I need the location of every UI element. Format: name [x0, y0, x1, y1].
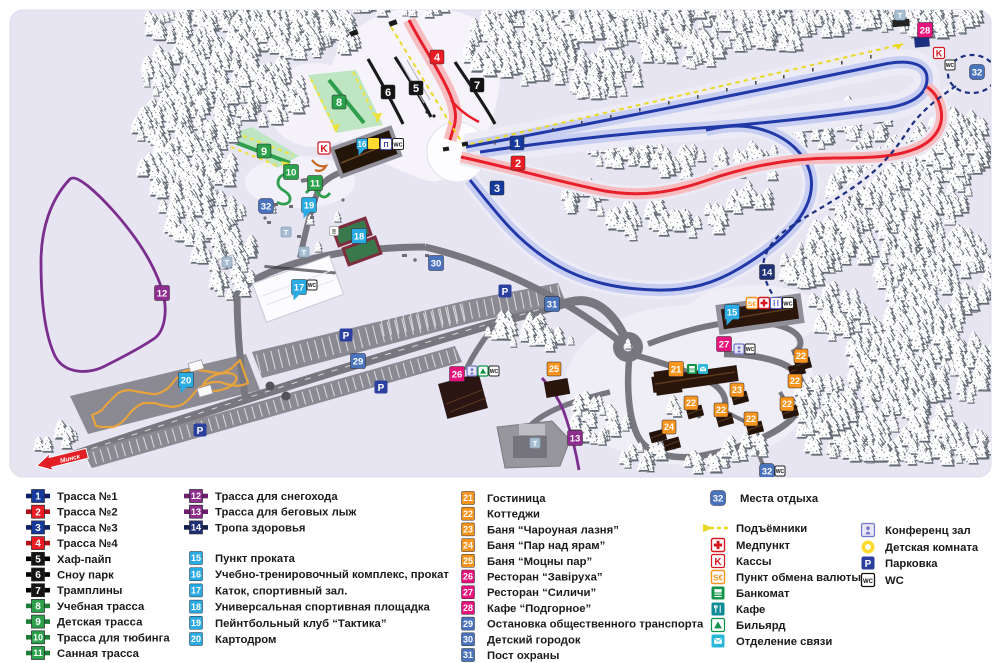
svg-text:Тропа здоровья: Тропа здоровья: [215, 522, 306, 534]
svg-text:Детская комната: Детская комната: [885, 542, 979, 554]
svg-text:26: 26: [463, 572, 473, 582]
svg-text:24: 24: [463, 540, 473, 550]
svg-text:K: K: [714, 557, 722, 568]
svg-text:Трасса №4: Трасса №4: [57, 538, 118, 550]
svg-text:7: 7: [474, 80, 480, 92]
svg-text:T: T: [284, 228, 289, 237]
svg-text:9: 9: [35, 617, 41, 628]
svg-text:14: 14: [762, 267, 773, 278]
svg-text:P: P: [197, 426, 204, 437]
svg-text:16: 16: [191, 569, 201, 579]
svg-text:13: 13: [191, 507, 201, 517]
svg-text:19: 19: [191, 618, 201, 628]
svg-text:28: 28: [463, 603, 473, 613]
svg-text:Банкомат: Банкомат: [736, 588, 790, 600]
svg-text:32: 32: [713, 493, 724, 504]
svg-text:3: 3: [35, 523, 41, 534]
svg-text:18: 18: [354, 231, 365, 242]
svg-text:24: 24: [664, 422, 674, 432]
svg-text:14: 14: [191, 523, 201, 533]
svg-text:10: 10: [33, 633, 43, 643]
svg-text:Санная трасса: Санная трасса: [57, 648, 140, 660]
svg-text:22: 22: [746, 414, 756, 424]
svg-text:17: 17: [191, 586, 201, 596]
svg-text:WC: WC: [885, 575, 904, 587]
svg-text:Ресторан “Силичи”: Ресторан “Силичи”: [487, 587, 596, 599]
svg-text:25: 25: [549, 364, 559, 374]
svg-text:22: 22: [686, 398, 696, 408]
svg-text:15: 15: [727, 307, 738, 318]
svg-text:4: 4: [35, 539, 41, 550]
svg-text:Пункт обмена валюты: Пункт обмена валюты: [736, 572, 861, 584]
svg-text:20: 20: [181, 375, 192, 386]
svg-text:П: П: [383, 142, 388, 149]
svg-text:5: 5: [413, 83, 419, 95]
svg-text:P: P: [502, 287, 509, 298]
svg-text:3: 3: [494, 183, 500, 195]
svg-text:WC: WC: [490, 369, 499, 375]
svg-text:Универсальная спортивная площа: Универсальная спортивная площадка: [215, 602, 431, 614]
svg-text:Баня “Пар над ярам”: Баня “Пар над ярам”: [487, 540, 605, 552]
svg-text:Подъёмники: Подъёмники: [736, 523, 807, 535]
svg-text:WC: WC: [746, 347, 755, 353]
svg-text:4: 4: [434, 52, 441, 64]
svg-text:32: 32: [972, 67, 983, 78]
svg-text:19: 19: [304, 200, 315, 211]
svg-text:T: T: [898, 11, 903, 20]
svg-text:6: 6: [35, 570, 41, 581]
svg-text:P: P: [343, 331, 350, 342]
svg-text:21: 21: [671, 364, 682, 375]
svg-text:Трасса №3: Трасса №3: [57, 522, 118, 534]
svg-text:28: 28: [920, 25, 931, 36]
svg-text:Медпункт: Медпункт: [736, 540, 790, 552]
svg-text:K: K: [936, 49, 943, 59]
svg-text:S€: S€: [748, 301, 757, 308]
svg-text:32: 32: [261, 201, 272, 212]
svg-text:WC: WC: [308, 283, 317, 289]
svg-text:Баня “Чароуная лазня”: Баня “Чароуная лазня”: [487, 524, 619, 536]
svg-text:Пейнтбольный клуб “Тактика”: Пейнтбольный клуб “Тактика”: [215, 618, 386, 630]
svg-text:WC: WC: [393, 142, 402, 148]
svg-text:11: 11: [33, 648, 43, 658]
svg-text:Трасса для снегохода: Трасса для снегохода: [215, 491, 338, 503]
svg-text:26: 26: [452, 369, 463, 380]
svg-text:8: 8: [35, 602, 41, 613]
svg-text:Картодром: Картодром: [215, 634, 276, 646]
svg-text:‼: ‼: [332, 229, 336, 236]
svg-text:2: 2: [35, 507, 41, 518]
svg-text:Каток, спортивный зал.: Каток, спортивный зал.: [215, 585, 347, 597]
svg-text:6: 6: [385, 87, 391, 99]
svg-text:27: 27: [463, 587, 473, 597]
svg-text:31: 31: [547, 299, 558, 310]
svg-text:22: 22: [463, 509, 473, 519]
svg-text:8: 8: [336, 97, 342, 109]
svg-text:Трамплины: Трамплины: [57, 585, 122, 597]
svg-text:32: 32: [762, 466, 773, 477]
svg-text:Пункт проката: Пункт проката: [215, 553, 296, 565]
svg-text:Детская трасса: Детская трасса: [57, 617, 143, 629]
svg-text:18: 18: [191, 602, 201, 612]
svg-text:Трасса №2: Трасса №2: [57, 507, 118, 519]
svg-text:10: 10: [286, 167, 297, 178]
svg-text:Пост охраны: Пост охраны: [487, 650, 559, 662]
svg-text:T: T: [533, 439, 538, 448]
svg-text:1: 1: [514, 138, 520, 150]
svg-text:25: 25: [463, 556, 473, 566]
svg-text:Коттеджи: Коттеджи: [487, 509, 540, 521]
svg-text:P: P: [865, 559, 872, 570]
svg-text:Баня “Моцны пар”: Баня “Моцны пар”: [487, 556, 592, 568]
svg-text:7: 7: [35, 586, 41, 597]
svg-text:Бильярд: Бильярд: [736, 620, 786, 632]
svg-text:2: 2: [515, 158, 521, 170]
svg-text:20: 20: [191, 634, 201, 644]
svg-text:Кассы: Кассы: [736, 556, 772, 568]
svg-text:13: 13: [570, 433, 581, 444]
svg-text:Учебная трасса: Учебная трасса: [57, 601, 145, 613]
svg-text:22: 22: [796, 351, 806, 361]
svg-text:Сноу парк: Сноу парк: [57, 570, 114, 582]
svg-text:Трасса для тюбинга: Трасса для тюбинга: [57, 632, 170, 644]
svg-text:17: 17: [294, 282, 305, 293]
svg-text:K: K: [320, 144, 328, 155]
svg-text:22: 22: [782, 399, 792, 409]
svg-text:WC: WC: [863, 579, 874, 585]
svg-text:30: 30: [431, 258, 442, 269]
svg-text:12: 12: [157, 288, 168, 299]
svg-text:Трасса №1: Трасса №1: [57, 491, 118, 503]
svg-text:Отделение связи: Отделение связи: [736, 636, 832, 648]
svg-text:WC: WC: [783, 301, 792, 307]
svg-text:12: 12: [191, 491, 201, 501]
svg-text:Места отдыха: Места отдыха: [740, 493, 819, 505]
svg-text:29: 29: [353, 356, 364, 367]
svg-text:Детский городок: Детский городок: [487, 634, 581, 646]
svg-text:15: 15: [191, 553, 201, 563]
svg-text:22: 22: [790, 376, 800, 386]
svg-text:Гостиница: Гостиница: [487, 493, 546, 505]
svg-text:WC: WC: [946, 63, 955, 69]
svg-text:Парковка: Парковка: [885, 558, 938, 570]
svg-text:9: 9: [261, 146, 267, 158]
svg-text:11: 11: [310, 178, 321, 189]
svg-text:29: 29: [463, 619, 473, 629]
svg-text:Ресторан “Завіруха”: Ресторан “Завіруха”: [487, 572, 603, 584]
svg-text:Конференц зал: Конференц зал: [885, 525, 971, 537]
svg-text:Трасса для беговых лыж: Трасса для беговых лыж: [215, 507, 357, 519]
svg-text:27: 27: [719, 339, 730, 350]
svg-text:P: P: [378, 383, 385, 394]
svg-text:1: 1: [35, 492, 41, 503]
svg-text:23: 23: [463, 525, 473, 535]
svg-text:Учебно-тренировочный комплекс,: Учебно-тренировочный комплекс, прокат: [215, 569, 449, 581]
svg-text:Кафе: Кафе: [736, 604, 765, 616]
svg-text:16: 16: [358, 140, 367, 149]
svg-text:Остановка общественного трансп: Остановка общественного транспорта: [487, 619, 704, 631]
svg-text:21: 21: [463, 493, 473, 503]
svg-text:S€: S€: [713, 574, 723, 583]
svg-text:Кафе “Подгорное”: Кафе “Подгорное”: [487, 603, 591, 615]
svg-text:WC: WC: [776, 469, 785, 475]
svg-text:30: 30: [463, 635, 473, 645]
svg-text:23: 23: [732, 385, 742, 395]
svg-text:22: 22: [716, 405, 726, 415]
svg-text:T: T: [302, 248, 307, 257]
svg-text:31: 31: [463, 650, 473, 660]
svg-text:Хаф-пайп: Хаф-пайп: [57, 554, 112, 566]
svg-text:5: 5: [35, 554, 41, 565]
svg-text:T: T: [225, 258, 230, 267]
